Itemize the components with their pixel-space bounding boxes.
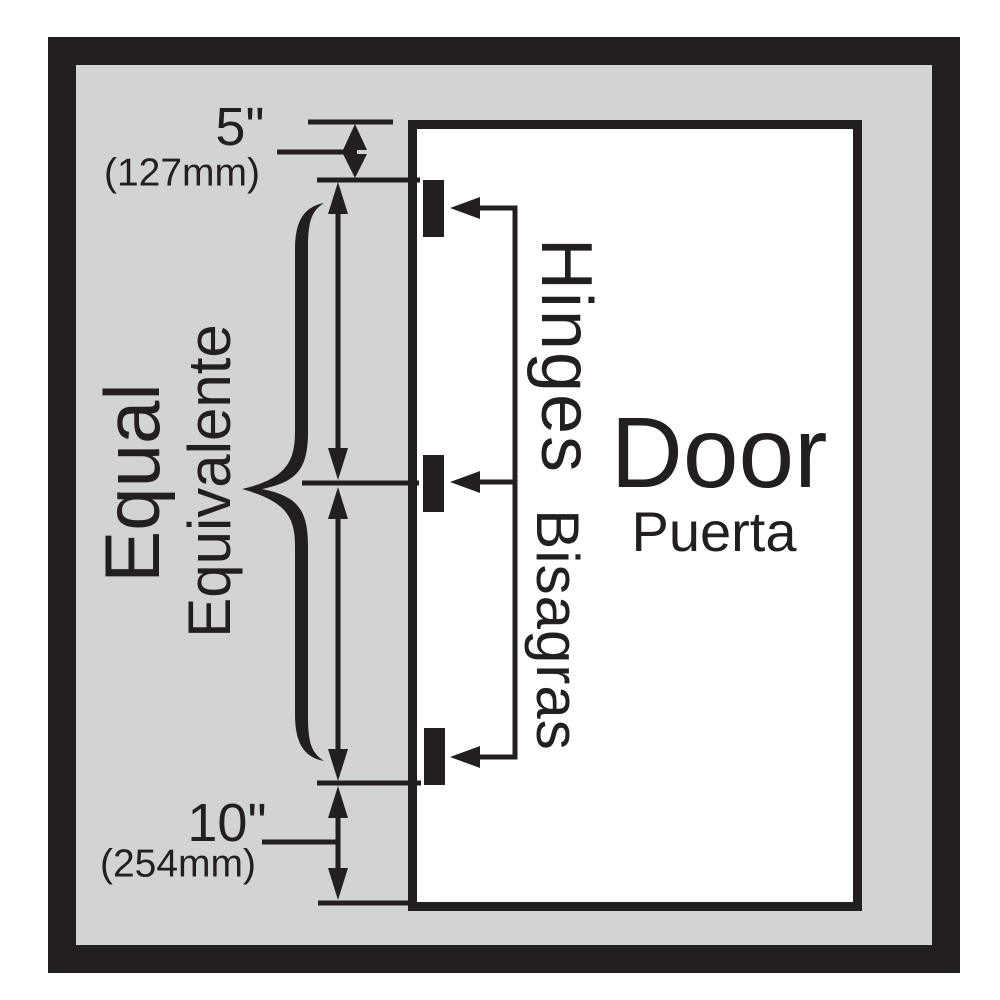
arrowhead-down-icon	[328, 749, 348, 781]
bisagras-label: Bisagras	[527, 509, 587, 750]
arrow-equal-lower	[328, 487, 348, 781]
arrowhead-up-icon	[328, 182, 348, 214]
arrowhead-down-icon	[343, 154, 367, 178]
arrowhead-left-icon	[450, 471, 480, 493]
arrow-equal-upper	[328, 182, 348, 480]
dimension-127mm-label: (127mm)	[104, 154, 260, 193]
puerta-label: Puerta	[632, 504, 797, 560]
arrowhead-up-icon	[328, 487, 348, 519]
arrowhead-up-icon	[343, 124, 367, 150]
hinges-label: Hinges	[530, 238, 602, 474]
hinge-pointer-bracket	[450, 197, 515, 768]
equivalente-label: Equivalente	[180, 324, 240, 638]
arrowhead-down-icon	[328, 448, 348, 480]
arrowhead-up-icon	[328, 786, 348, 818]
door-label: Door	[611, 403, 828, 503]
arrowhead-left-icon	[450, 746, 480, 768]
hinge-installation-diagram: 5" (127mm) 10" (254mm) Equal Equivalente…	[0, 0, 1000, 1000]
arrowhead-left-icon	[450, 197, 480, 219]
arrowhead-down-icon	[328, 868, 348, 900]
dimension-5in-label: 5"	[215, 100, 264, 154]
equal-label: Equal	[93, 383, 171, 583]
dimension-254mm-label: (254mm)	[100, 845, 256, 884]
